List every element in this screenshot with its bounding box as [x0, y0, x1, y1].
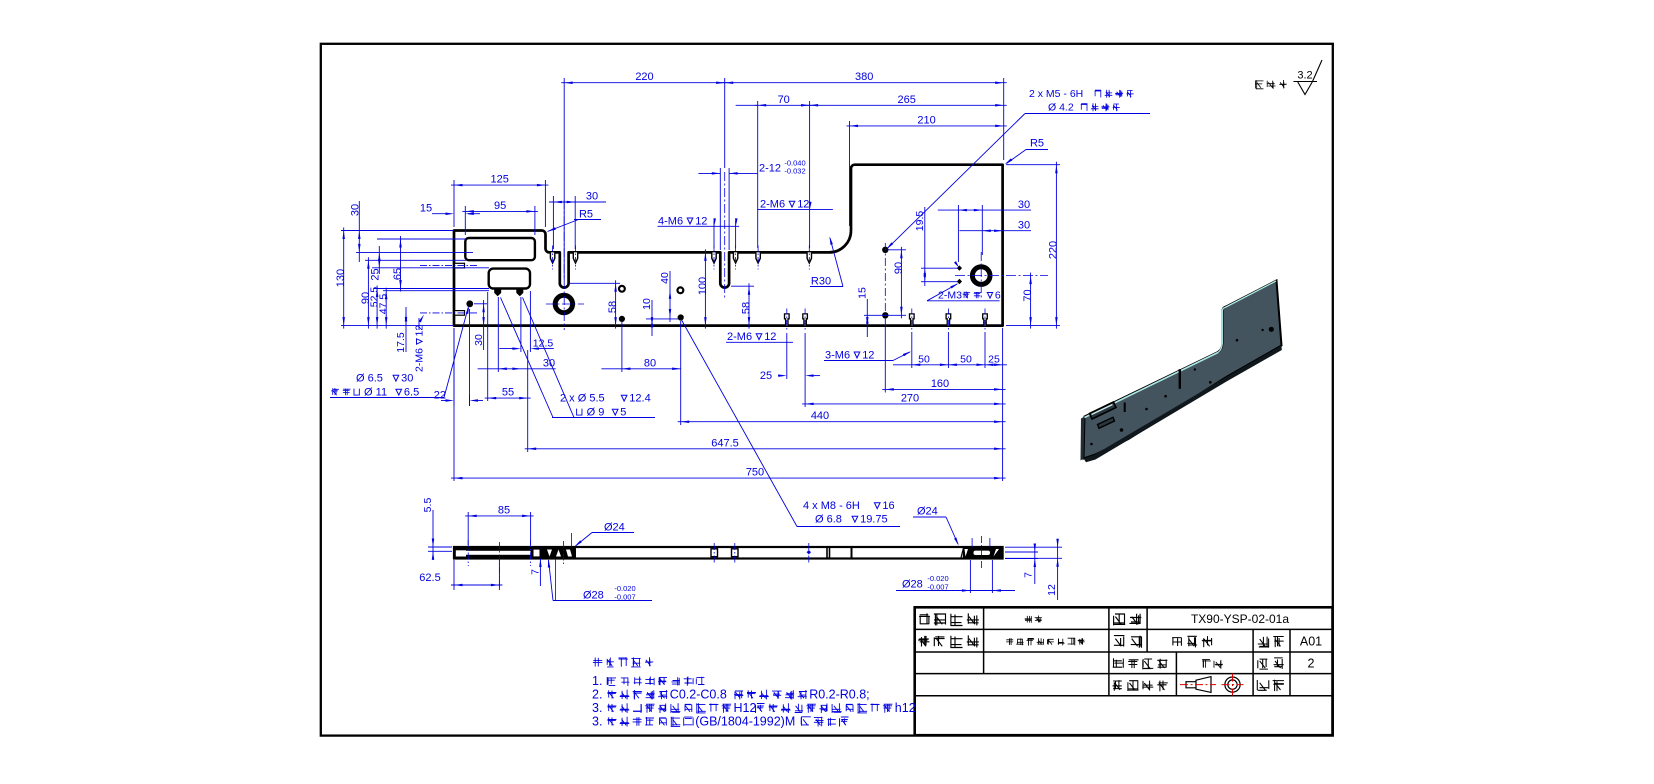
svg-text:5: 5 — [620, 407, 626, 419]
svg-text:25: 25 — [370, 268, 382, 280]
svg-text:30: 30 — [1018, 199, 1030, 211]
svg-text:50: 50 — [960, 354, 972, 366]
svg-text:6: 6 — [995, 290, 1001, 302]
svg-text:80: 80 — [644, 357, 656, 369]
svg-text:12: 12 — [695, 215, 707, 227]
svg-text:2 x M5 - 6H: 2 x M5 - 6H — [1029, 88, 1083, 100]
svg-text:3-M6: 3-M6 — [825, 349, 850, 361]
svg-text:22: 22 — [434, 390, 446, 402]
svg-text:130: 130 — [335, 269, 347, 287]
svg-text:3.2: 3.2 — [1297, 70, 1312, 82]
svg-text:50: 50 — [918, 354, 930, 366]
svg-text:h12: h12 — [895, 701, 916, 715]
svg-text:220: 220 — [1048, 241, 1060, 259]
svg-text:A01: A01 — [1300, 634, 1322, 648]
svg-text:30: 30 — [473, 334, 485, 346]
svg-text:15: 15 — [420, 203, 432, 215]
svg-text:-0.032: -0.032 — [784, 167, 805, 176]
svg-text:265: 265 — [898, 94, 916, 106]
svg-text:Ø28: Ø28 — [902, 579, 923, 591]
svg-text:R30: R30 — [811, 275, 831, 287]
svg-text:7: 7 — [1023, 572, 1035, 578]
svg-text:65: 65 — [392, 268, 404, 280]
svg-text:19.5: 19.5 — [914, 211, 926, 232]
svg-text:25: 25 — [988, 354, 1000, 366]
svg-text:5.5: 5.5 — [422, 498, 434, 513]
svg-text:2-M6: 2-M6 — [727, 331, 752, 343]
svg-text:380: 380 — [855, 71, 873, 83]
svg-text:30: 30 — [1018, 220, 1030, 232]
svg-text:17.5: 17.5 — [395, 332, 407, 353]
svg-text:2-M6: 2-M6 — [760, 199, 785, 211]
svg-text:12: 12 — [797, 199, 809, 211]
svg-text:85: 85 — [498, 504, 510, 516]
svg-text:2.: 2. — [592, 688, 602, 702]
svg-text:7: 7 — [530, 569, 542, 575]
svg-text:58: 58 — [607, 301, 619, 313]
svg-text:15: 15 — [857, 287, 869, 299]
svg-text:Ø 6.5: Ø 6.5 — [356, 373, 383, 385]
svg-text:2-M3: 2-M3 — [938, 290, 962, 302]
svg-text:2 x Ø 5.5: 2 x Ø 5.5 — [560, 393, 605, 405]
svg-text:(GB/1804-1992)M: (GB/1804-1992)M — [695, 715, 795, 729]
svg-text:2-M6: 2-M6 — [414, 348, 426, 372]
svg-text:6.5: 6.5 — [404, 387, 419, 399]
svg-text:30: 30 — [401, 373, 413, 385]
svg-text:62.5: 62.5 — [419, 572, 440, 584]
svg-text:95: 95 — [494, 200, 506, 212]
svg-text:3.: 3. — [592, 715, 602, 729]
svg-text:30: 30 — [349, 204, 361, 216]
svg-text:70: 70 — [778, 94, 790, 106]
svg-text:210: 210 — [917, 114, 935, 126]
svg-text:55: 55 — [502, 387, 514, 399]
svg-text:10: 10 — [641, 298, 653, 310]
svg-text:Ø 4.2: Ø 4.2 — [1048, 102, 1074, 114]
svg-text:Ø 6.8: Ø 6.8 — [815, 514, 842, 526]
svg-text:12.5: 12.5 — [533, 337, 554, 349]
svg-text:58: 58 — [740, 302, 752, 314]
svg-text:647.5: 647.5 — [711, 437, 739, 449]
svg-text:⊔ Ø 11: ⊔ Ø 11 — [352, 387, 387, 399]
svg-text:Ø24: Ø24 — [917, 506, 938, 518]
svg-text:R5: R5 — [1030, 138, 1044, 150]
svg-text:16: 16 — [882, 500, 894, 512]
svg-text:12: 12 — [1046, 584, 1058, 596]
svg-text:12: 12 — [862, 349, 874, 361]
svg-text:220: 220 — [635, 71, 653, 83]
svg-text:3.: 3. — [592, 701, 602, 715]
svg-text:C0.2-C0.8: C0.2-C0.8 — [670, 688, 727, 702]
svg-text:1.: 1. — [592, 674, 602, 688]
svg-text:270: 270 — [901, 392, 919, 404]
svg-text:⊔ Ø 9: ⊔ Ø 9 — [575, 407, 604, 419]
svg-text:12: 12 — [764, 331, 776, 343]
svg-text:440: 440 — [811, 410, 829, 422]
svg-text:4 x M8 - 6H: 4 x M8 - 6H — [803, 500, 860, 512]
svg-text:160: 160 — [931, 378, 949, 390]
svg-text:2-12: 2-12 — [759, 163, 781, 175]
svg-text:TX90-YSP-02-01a: TX90-YSP-02-01a — [1191, 612, 1289, 626]
svg-text:12: 12 — [414, 325, 426, 337]
svg-text:Ø24: Ø24 — [604, 522, 625, 534]
svg-text:H12: H12 — [734, 701, 757, 715]
svg-text:30: 30 — [586, 191, 598, 203]
svg-text:4-M6: 4-M6 — [658, 215, 683, 227]
svg-text:19.75: 19.75 — [860, 514, 888, 526]
svg-text:47.5: 47.5 — [377, 294, 389, 315]
svg-text:125: 125 — [491, 174, 509, 186]
svg-text:750: 750 — [746, 467, 764, 479]
svg-text:R5: R5 — [579, 209, 593, 221]
svg-text:40: 40 — [659, 272, 671, 284]
svg-text:12.4: 12.4 — [629, 393, 650, 405]
svg-text:70: 70 — [1022, 289, 1034, 301]
svg-text:Ø28: Ø28 — [583, 590, 604, 602]
svg-text:90: 90 — [893, 262, 905, 274]
svg-text:-0.007: -0.007 — [927, 583, 948, 592]
svg-text:2: 2 — [1308, 656, 1315, 670]
svg-text:100: 100 — [697, 277, 709, 295]
svg-text:25: 25 — [760, 370, 772, 382]
svg-text:R0.2-R0.8;: R0.2-R0.8; — [809, 688, 869, 702]
